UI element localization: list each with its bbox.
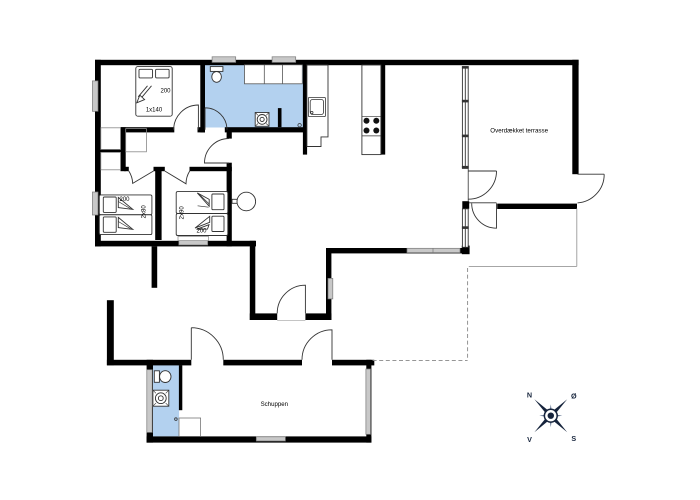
svg-text:200: 200 [119,197,130,203]
svg-text:1x140: 1x140 [146,107,163,113]
svg-text:Ø: Ø [571,392,577,401]
svg-text:200: 200 [196,229,207,235]
svg-text:200: 200 [160,88,171,94]
svg-text:S: S [571,434,576,443]
svg-text:Schuppen: Schuppen [261,401,288,408]
svg-text:2x80: 2x80 [141,205,147,219]
svg-text:V: V [527,435,532,444]
svg-text:Overdækket terrasse: Overdækket terrasse [490,128,548,135]
svg-text:N: N [527,391,532,400]
svg-text:2x90: 2x90 [180,206,186,220]
